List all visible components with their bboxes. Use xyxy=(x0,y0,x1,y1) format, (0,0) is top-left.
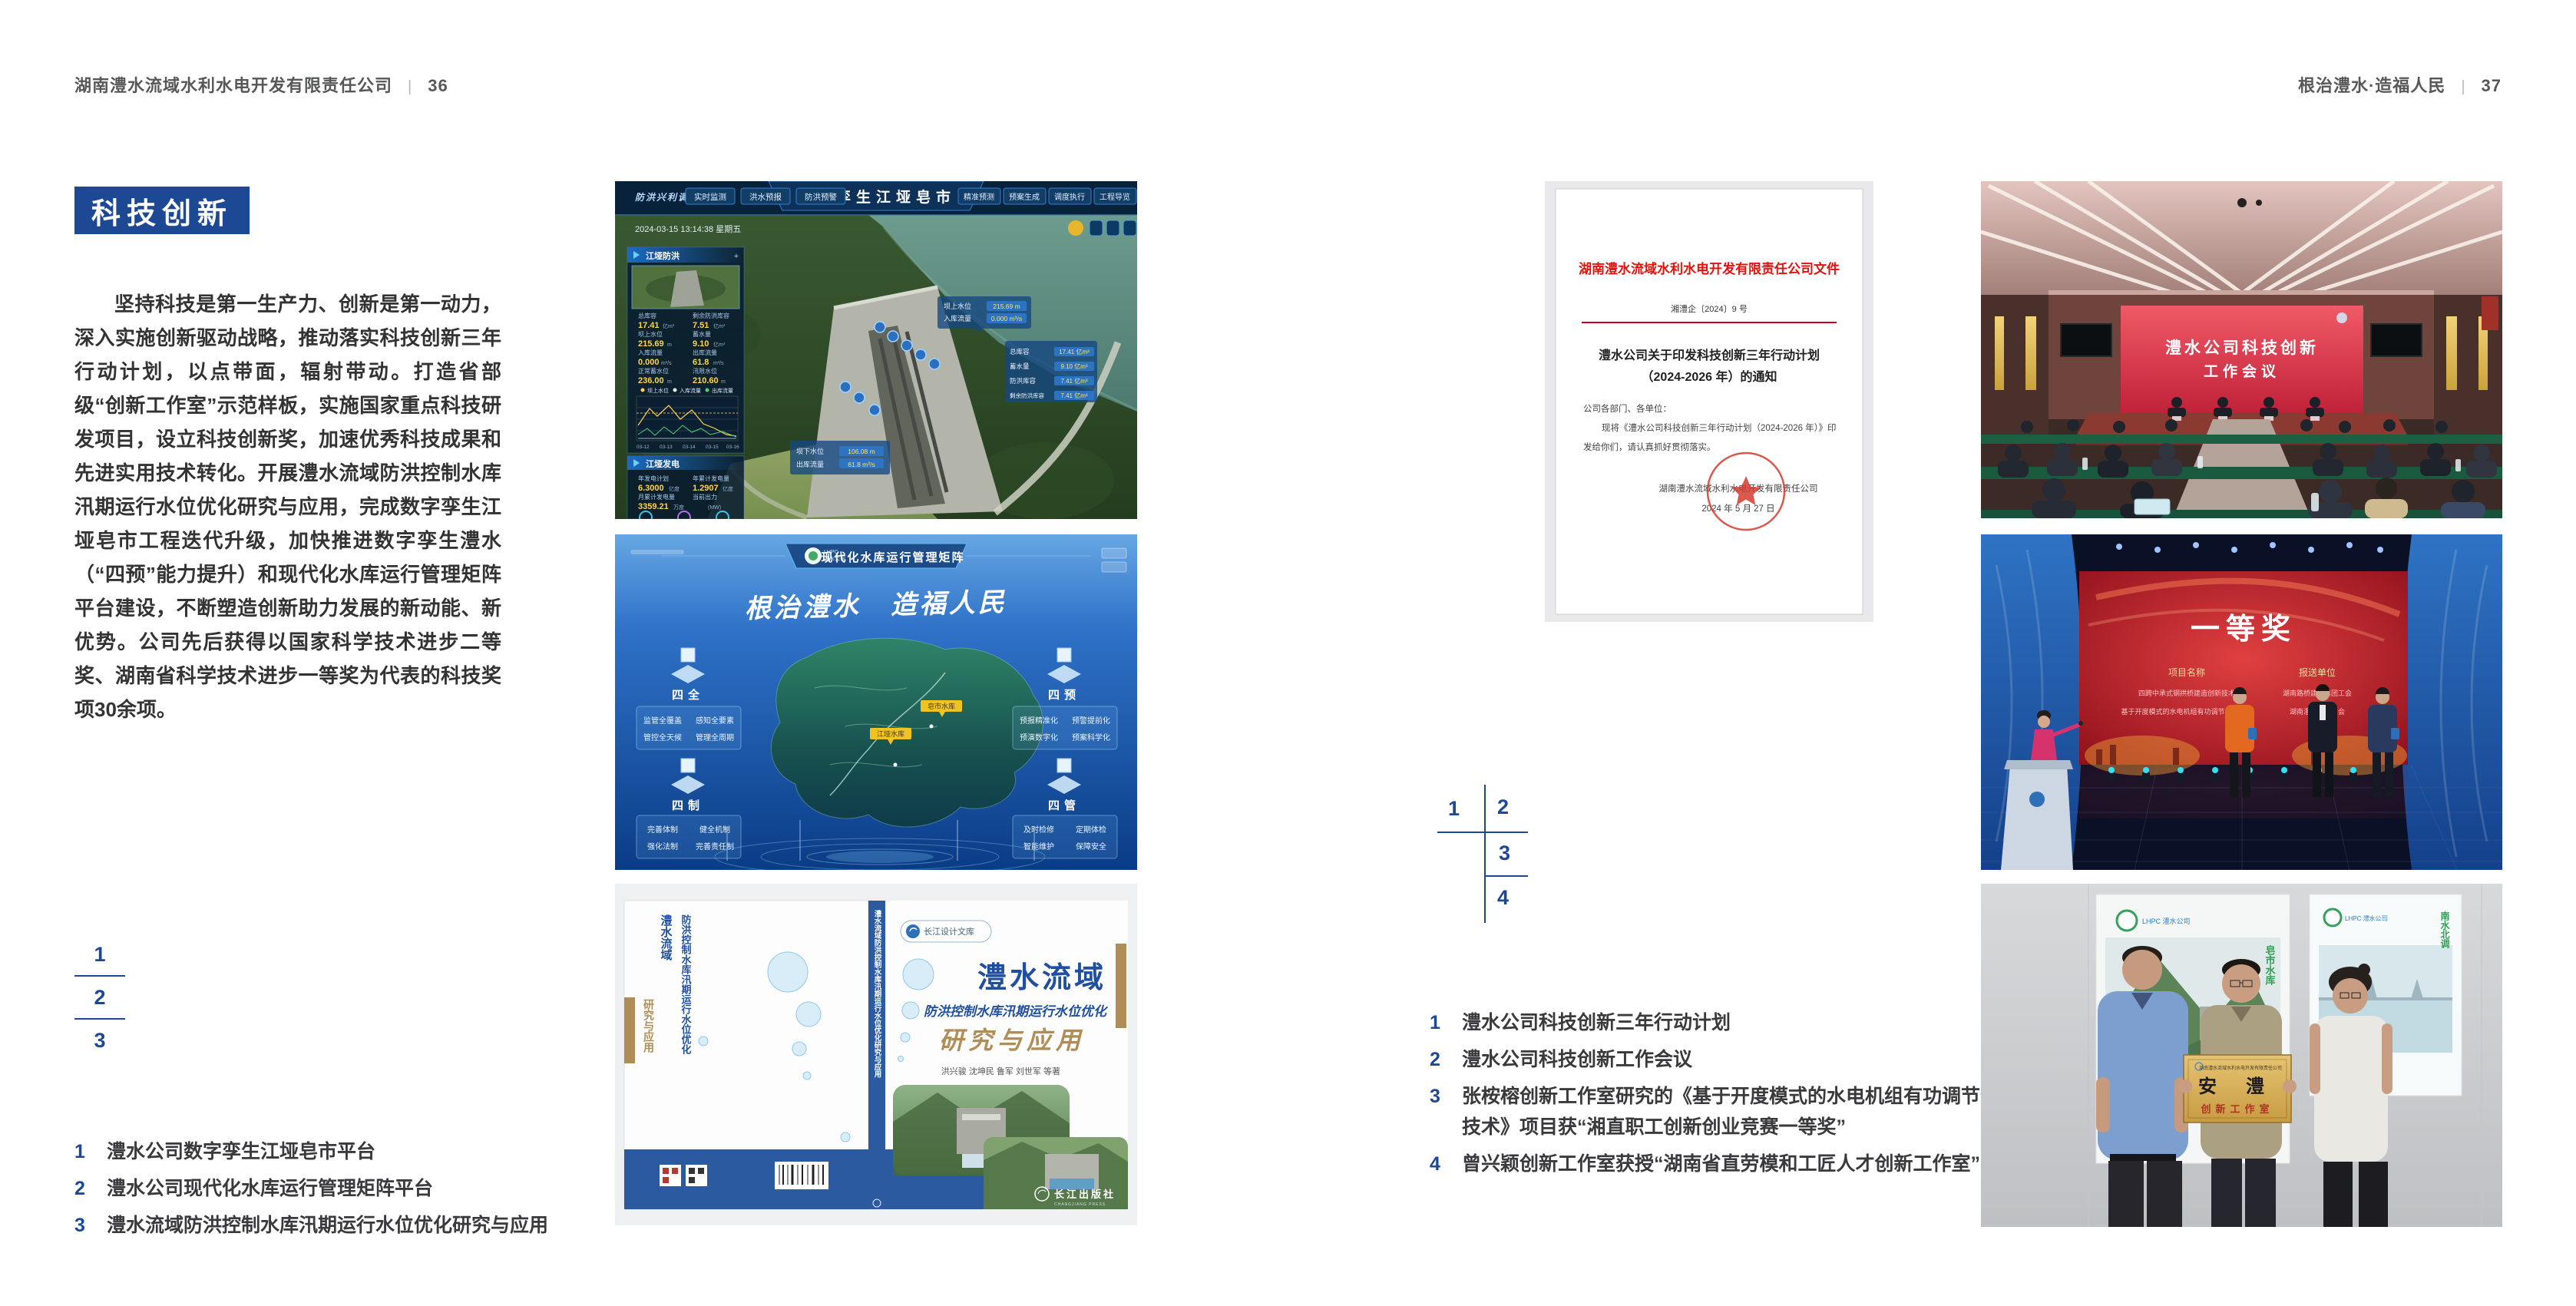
publisher-name-en: CHANGJIANG PRESS xyxy=(1054,1202,1106,1207)
svg-text:m: m xyxy=(667,379,672,385)
dashboard-timestamp: 2024-03-15 13:14:38 星期五 xyxy=(635,224,741,234)
svg-text:7.41 亿m³: 7.41 亿m³ xyxy=(1060,377,1087,385)
document-title-line1: 澧水公司关于印发科技创新三年行动计划 xyxy=(1599,348,1820,362)
svg-text:完善责任制: 完善责任制 xyxy=(696,841,734,851)
screen-logo xyxy=(2336,312,2347,323)
svg-text:1.2907: 1.2907 xyxy=(693,484,719,493)
caption-number: 3 xyxy=(1430,1081,1462,1112)
svg-text:皂市水库: 皂市水库 xyxy=(928,702,955,710)
svg-text:防洪库容: 防洪库容 xyxy=(1010,377,1037,385)
back-subtitle-col: 防洪控制水库汛期运行水位优化 xyxy=(680,914,693,1055)
tab-flood-warning[interactable]: 防洪预警 xyxy=(805,192,837,202)
svg-text:9.10 亿m³: 9.10 亿m³ xyxy=(1060,362,1087,370)
svg-text:03-14: 03-14 xyxy=(683,445,696,450)
key-number: 1 xyxy=(94,943,105,966)
running-header-left: 湖南澧水流域水利水电开发有限责任公司 | 36 xyxy=(74,72,448,97)
svg-text:03-12: 03-12 xyxy=(637,445,650,450)
holding-hand xyxy=(2178,1080,2192,1093)
svg-text:坝上水位: 坝上水位 xyxy=(638,330,663,338)
trophy xyxy=(2391,728,2399,739)
svg-text:剩余防洪库容: 剩余防洪库容 xyxy=(1010,392,1044,399)
body-paragraph: 坚持科技是第一生产力、创新是第一动力，深入实施创新驱动战略，推动落实科技创新三年… xyxy=(74,287,501,726)
svg-text:215.69 m: 215.69 m xyxy=(993,303,1020,310)
figure-key-left: 1 2 3 xyxy=(74,943,125,1052)
meeting-screen xyxy=(2121,306,2363,416)
svg-text:完善体制: 完善体制 xyxy=(647,825,678,835)
svg-text:年发电计划: 年发电计划 xyxy=(638,474,669,482)
holding-hand xyxy=(2283,1080,2297,1093)
svg-text:出库流量: 出库流量 xyxy=(712,387,733,394)
svg-text:坝上水位: 坝上水位 xyxy=(944,302,971,310)
caption-item: 3 澧水流域防洪控制水库汛期运行水位优化研究与应用 xyxy=(74,1210,612,1241)
svg-text:0.000 m³/s: 0.000 m³/s xyxy=(991,315,1022,322)
stage-side-panel-right xyxy=(2401,534,2502,870)
section-title-badge: 科技创新 xyxy=(74,187,250,234)
running-header-right: 根治澧水·造福人民 | 37 xyxy=(2298,72,2502,97)
key-divider-line xyxy=(1437,832,1528,833)
svg-text:保障安全: 保障安全 xyxy=(1076,841,1106,851)
svg-text:月累计发电量: 月累计发电量 xyxy=(638,493,675,501)
svg-text:及时检修: 及时检修 xyxy=(1023,825,1054,835)
svg-text:亿度: 亿度 xyxy=(669,485,680,492)
key-divider-line xyxy=(1484,785,1486,923)
water-level-chart: 坝上水位 入库流量 出库流量 03-12 03-13 03-14 03-15 0… xyxy=(637,387,739,450)
svg-text:预警提前化: 预警提前化 xyxy=(1072,716,1110,726)
tissue-box xyxy=(2135,499,2170,514)
svg-text:入库流量: 入库流量 xyxy=(680,387,701,394)
svg-text:江垭水库: 江垭水库 xyxy=(877,729,904,738)
svg-text:亿度: 亿度 xyxy=(723,485,733,492)
svg-text:四制: 四制 xyxy=(672,798,704,812)
tab-realtime-monitoring[interactable]: 实时监测 xyxy=(694,192,726,202)
project-line: 四跨中承式钢拱桥建造创新技术 xyxy=(2138,689,2235,697)
svg-text:m: m xyxy=(667,342,672,348)
figure-captions-right: 1 澧水公司科技创新三年行动计划 2 澧水公司科技创新工作会议 3 张桉榕创新工… xyxy=(1430,1007,2036,1185)
svg-text:出库流量: 出库流量 xyxy=(796,460,824,468)
svg-text:03-16: 03-16 xyxy=(726,445,739,450)
user-icon[interactable] xyxy=(1068,220,1083,236)
page-number-right: 37 xyxy=(2482,76,2502,96)
back-accent-bar xyxy=(624,997,635,1063)
svg-text:入库流量: 入库流量 xyxy=(944,314,971,322)
caption-item: 2 澧水公司现代化水库运行管理矩阵平台 xyxy=(74,1173,612,1204)
section-title-text: 科技创新 xyxy=(91,190,233,232)
caption-item: 4 曾兴颖创新工作室获授“湖南省直劳模和工匠人才创新工作室” xyxy=(1430,1149,2036,1179)
tool-icon[interactable] xyxy=(1106,220,1119,236)
key-number: 1 xyxy=(1448,797,1460,820)
key-divider-line xyxy=(74,1018,125,1020)
key-number: 2 xyxy=(1497,795,1509,818)
document-salutation: 公司各部门、各单位： xyxy=(1583,403,1672,414)
expand-icon[interactable]: + xyxy=(734,252,739,261)
watershed-3d-map: 皂市水库 江垭水库 xyxy=(771,638,1043,827)
poster-logo-text: LHPC 澧水公司 xyxy=(2345,914,2388,922)
svg-text:0.000: 0.000 xyxy=(638,358,660,367)
map-tag-upstream: 坝上水位 215.69 m 入库流量 0.000 m³/s xyxy=(937,296,1031,333)
light-pillar xyxy=(1995,316,2004,390)
caption-text: 澧水公司现代化水库运行管理矩阵平台 xyxy=(107,1173,612,1204)
svg-text:总库容: 总库容 xyxy=(638,312,656,319)
tab-plan-generation[interactable]: 预案生成 xyxy=(1009,192,1040,202)
back-title-col: 澧水流域 xyxy=(660,914,673,961)
caption-item: 3 张桉榕创新工作室研究的《基于开度模式的水电机组有功调节优化技术》项目获“湘直… xyxy=(1430,1081,2036,1142)
document-body-line2: 发给你们，请认真抓好贯彻落实。 xyxy=(1583,441,1716,452)
caption-text: 曾兴颖创新工作室获授“湖南省直劳模和工匠人才创新工作室” xyxy=(1462,1149,2036,1179)
svg-text:61.8: 61.8 xyxy=(693,358,709,367)
svg-text:预报精准化: 预报精准化 xyxy=(1020,716,1058,726)
front-accent-bar xyxy=(1116,944,1126,1028)
trophy xyxy=(2248,728,2257,739)
caption-number: 2 xyxy=(1430,1044,1462,1075)
key-divider-line xyxy=(74,975,125,977)
brochure-spread: 湖南澧水流域水利水电开发有限责任公司 | 36 根治澧水·造福人民 | 37 科… xyxy=(0,0,2576,1306)
page-number-left: 36 xyxy=(428,76,448,96)
caption-item: 1 澧水公司科技创新三年行动计划 xyxy=(1430,1007,2036,1038)
svg-text:蓄水量: 蓄水量 xyxy=(1010,362,1030,370)
svg-text:定期体检: 定期体检 xyxy=(1076,825,1106,835)
barcode xyxy=(775,1162,828,1189)
desk-row-1 xyxy=(1981,435,2502,444)
plaque-title: 创新工作室 xyxy=(2200,1103,2273,1115)
tool-icon[interactable] xyxy=(1090,220,1103,236)
svg-text:7.51: 7.51 xyxy=(693,321,709,330)
lhpc-logo-icon xyxy=(2324,909,2341,926)
svg-text:智能维护: 智能维护 xyxy=(1023,841,1054,851)
svg-text:四预: 四预 xyxy=(1048,689,1080,702)
svg-text:四管: 四管 xyxy=(1048,798,1080,812)
svg-text:m: m xyxy=(721,379,726,385)
svg-text:61.8 m³/s: 61.8 m³/s xyxy=(848,461,875,468)
svg-text:215.69: 215.69 xyxy=(638,339,664,349)
tab-flood-forecast[interactable]: 洪水预报 xyxy=(749,192,782,202)
panel-flood-control: 江垭防洪 + 总库容 剩余防洪库容 坝上水位 蓄水量 入库流量 出库流量 正常蓄… xyxy=(627,247,744,453)
screen-title-line1: 澧水公司科技创新 xyxy=(2165,339,2319,357)
group-icon xyxy=(681,648,695,662)
svg-text:蓄水量: 蓄水量 xyxy=(693,330,711,338)
company-name: 湖南澧水流域水利水电开发有限责任公司 xyxy=(74,72,392,97)
figure-captions-left: 1 澧水公司数字孪生江垭皂市平台 2 澧水公司现代化水库运行管理矩阵平台 3 澧… xyxy=(74,1136,612,1247)
svg-text:17.41: 17.41 xyxy=(638,321,660,330)
document-header: 湖南澧水流域水利水电开发有限责任公司文件 xyxy=(1579,261,1840,276)
platform-title: 现代化水库运行管理矩阵 xyxy=(821,551,964,564)
key-number: 3 xyxy=(94,1029,105,1052)
svg-text:强化法制: 强化法制 xyxy=(647,841,678,851)
publisher-name: 长江出版社 xyxy=(1054,1189,1116,1200)
svg-text:亿m³: 亿m³ xyxy=(663,322,675,329)
caption-number: 4 xyxy=(1430,1149,1462,1179)
header-button[interactable] xyxy=(1102,548,1126,558)
figure-digital-twin-dashboard: 数字孪生江垭皂市 防洪兴利调度 实时监测 洪水预报 防洪预警 精准预测 预案生成… xyxy=(615,181,1137,519)
panel-power-generation: 江垭发电 年发电计划 年累计发电量 月累计发电量 当前出力 6.3000 1.2… xyxy=(627,456,744,519)
figure-key-right: 1 2 3 4 xyxy=(1437,785,1529,923)
svg-text:四全: 四全 xyxy=(672,688,704,702)
svg-text:236.00: 236.00 xyxy=(638,376,664,385)
key-divider-line xyxy=(1484,875,1528,877)
document-number: 湘澧企〔2024〕9 号 xyxy=(1671,303,1748,314)
svg-text:预案科学化: 预案科学化 xyxy=(1072,732,1110,742)
tool-icon[interactable] xyxy=(1123,220,1136,236)
key-number: 3 xyxy=(1499,841,1510,865)
lhpc-logo-icon xyxy=(2117,911,2137,931)
poster-logo-text: LHPC 澧水公司 xyxy=(2142,917,2191,925)
svg-text:健全机制: 健全机制 xyxy=(699,825,730,835)
spine-title: 澧水流域防洪控制水库汛期运行水位优化研究与应用 xyxy=(873,909,883,1078)
svg-text:(MW): (MW) xyxy=(708,505,721,511)
group-icon xyxy=(681,759,695,772)
poster-calligraphy: 南水北调 xyxy=(2439,911,2450,949)
key-number: 4 xyxy=(1497,886,1509,909)
svg-text:m³/s: m³/s xyxy=(713,361,724,366)
svg-text:剩余防洪库容: 剩余防洪库容 xyxy=(693,312,729,319)
project-column-header: 项目名称 xyxy=(2168,666,2205,678)
document-body-line1: 现将《澧水公司科技创新三年行动计划（2024-2026 年）》印 xyxy=(1602,422,1836,433)
book-title: 澧水流域 xyxy=(977,962,1106,994)
host-podium xyxy=(2001,765,2073,870)
svg-text:万度: 万度 xyxy=(673,504,684,511)
book-authors: 洪兴骏 沈坤民 鲁军 刘世军 等著 xyxy=(941,1066,1060,1076)
unit-column-header: 报送单位 xyxy=(2299,666,2336,678)
left-wall xyxy=(1981,295,2049,435)
figure-meeting-photo: 澧水公司科技创新 工作会议 xyxy=(1981,181,2502,518)
caption-number: 2 xyxy=(74,1173,107,1204)
series-name: 长江设计文库 xyxy=(924,926,974,937)
document-sheet xyxy=(1556,189,1863,614)
figure-official-document: 湖南澧水流域水利水电开发有限责任公司文件 湘澧企〔2024〕9 号 澧水公司关于… xyxy=(1545,181,1873,622)
svg-text:210.60: 210.60 xyxy=(693,376,719,385)
screen-title-line2: 工作会议 xyxy=(2204,362,2280,380)
light-pillar xyxy=(2446,316,2457,390)
svg-text:出库流量: 出库流量 xyxy=(693,349,717,356)
key-number: 2 xyxy=(94,986,105,1009)
svg-text:正常蓄水位: 正常蓄水位 xyxy=(638,367,669,375)
book-title2: 研究与应用 xyxy=(939,1027,1085,1054)
svg-text:坝上水位: 坝上水位 xyxy=(647,387,669,394)
caption-item: 2 澧水公司科技创新工作会议 xyxy=(1430,1044,2036,1075)
innovation-studio-plaque: 湖南澧水流域水利水电开发有限责任公司 安 澧 创新工作室 xyxy=(2178,1055,2297,1122)
figure-award-stage: 一等奖 项目名称 报送单位 四跨中承式钢拱桥建造创新技术 基于开度模式的水电机组… xyxy=(1981,534,2502,870)
red-wall-hanging xyxy=(2482,296,2498,330)
wall-tv xyxy=(2371,324,2422,356)
svg-text:入库流量: 入库流量 xyxy=(638,349,663,356)
svg-text:坝下水位: 坝下水位 xyxy=(796,447,824,455)
map-tag-capacity: 总库容 17.41 亿m³ 蓄水量 9.10 亿m³ 防洪库容 7.41 亿m³… xyxy=(1005,341,1097,402)
svg-text:亿m³: 亿m³ xyxy=(713,322,726,329)
caption-text: 澧水公司科技创新工作会议 xyxy=(1462,1044,2036,1075)
plaque-name: 安 澧 xyxy=(2198,1076,2277,1097)
poster-calligraphy: 皂市水库 xyxy=(2264,944,2276,986)
toolbar-icons[interactable] xyxy=(1068,220,1136,236)
group-icon xyxy=(1057,648,1071,662)
figure-book-cover: 澧水流域防洪控制水库汛期运行水位优化研究与应用 澧水流域 防洪控制水库汛期运行水… xyxy=(615,884,1137,1225)
caption-text: 澧水公司科技创新三年行动计划 xyxy=(1462,1007,2036,1038)
svg-text:总库容: 总库容 xyxy=(1010,348,1030,355)
svg-text:管理全周期: 管理全周期 xyxy=(696,732,734,742)
tab-project-tour[interactable]: 工程导览 xyxy=(1100,192,1130,202)
header-divider: | xyxy=(2461,78,2465,96)
document-title-line2: （2024-2026 年）的通知 xyxy=(1642,369,1777,384)
svg-text:03-15: 03-15 xyxy=(706,445,719,450)
tab-dispatch-execution[interactable]: 调度执行 xyxy=(1054,192,1085,202)
svg-text:感知全要素: 感知全要素 xyxy=(696,716,734,726)
figure-plaque-photo: LHPC 澧水公司 皂市水库 LHPC 澧水公司 南水北调 xyxy=(1981,884,2502,1227)
panel2-title: 江垭发电 xyxy=(646,458,680,469)
book-subtitle: 防洪控制水库汛期运行水位优化 xyxy=(924,1004,1109,1019)
dashboard-tabs-left[interactable]: 实时监测 洪水预报 防洪预警 xyxy=(686,188,845,204)
svg-text:9.10: 9.10 xyxy=(693,339,709,349)
award-title: 一等奖 xyxy=(2191,613,2297,646)
tab-precise-forecast[interactable]: 精准预测 xyxy=(964,192,994,202)
back-title2-col: 研究与应用 xyxy=(643,999,655,1053)
svg-text:m³/s: m³/s xyxy=(661,361,672,366)
svg-text:管控全天候: 管控全天候 xyxy=(643,732,682,742)
caption-number: 1 xyxy=(74,1136,107,1167)
water-bottle xyxy=(2311,493,2319,511)
svg-text:3359.21: 3359.21 xyxy=(638,502,669,511)
caption-item: 1 澧水公司数字孪生江垭皂市平台 xyxy=(74,1136,612,1167)
svg-text:监管全覆盖: 监管全覆盖 xyxy=(643,716,682,726)
caption-number: 3 xyxy=(74,1210,107,1241)
svg-text:7.41 亿m³: 7.41 亿m³ xyxy=(1060,392,1087,399)
caption-text: 张桉榕创新工作室研究的《基于开度模式的水电机组有功调节优化技术》项目获“湘直职工… xyxy=(1462,1081,2036,1142)
wall-tv xyxy=(2061,324,2111,356)
datetime-placeholder xyxy=(630,550,684,554)
svg-text:当前出力: 当前出力 xyxy=(693,493,717,501)
map-tag-downstream: 坝下水位 106.08 m 出库流量 61.8 m³/s xyxy=(790,441,890,474)
caption-text: 澧水公司数字孪生江垭皂市平台 xyxy=(107,1136,612,1167)
svg-text:年累计发电量: 年累计发电量 xyxy=(693,474,729,482)
svg-text:汛限水位: 汛限水位 xyxy=(693,367,717,375)
svg-text:03-13: 03-13 xyxy=(660,445,673,450)
panel1-title: 江垭防洪 xyxy=(646,250,680,261)
header-button[interactable] xyxy=(1102,562,1126,572)
svg-text:亿m³: 亿m³ xyxy=(713,341,726,348)
svg-text:6.3000: 6.3000 xyxy=(638,484,664,493)
slogan: 根治澧水·造福人民 xyxy=(2298,72,2445,97)
group-icon xyxy=(1057,759,1071,772)
svg-text:预演数字化: 预演数字化 xyxy=(1020,732,1058,742)
header-divider: | xyxy=(408,78,412,96)
svg-text:106.08 m: 106.08 m xyxy=(848,448,875,455)
figure-matrix-platform: LHPC 澧水公司 现代化水库运行管理矩阵 根治澧水 造福人民 皂市水库 江垭水… xyxy=(615,534,1137,870)
light-pillar xyxy=(2025,316,2036,390)
plaque-org-line: 湖南澧水流域水利水电开发有限责任公司 xyxy=(2199,1065,2282,1071)
caption-text: 澧水流域防洪控制水库汛期运行水位优化研究与应用 xyxy=(107,1210,612,1241)
svg-text:17.41 亿m³: 17.41 亿m³ xyxy=(1059,348,1090,355)
caption-number: 1 xyxy=(1430,1007,1462,1038)
